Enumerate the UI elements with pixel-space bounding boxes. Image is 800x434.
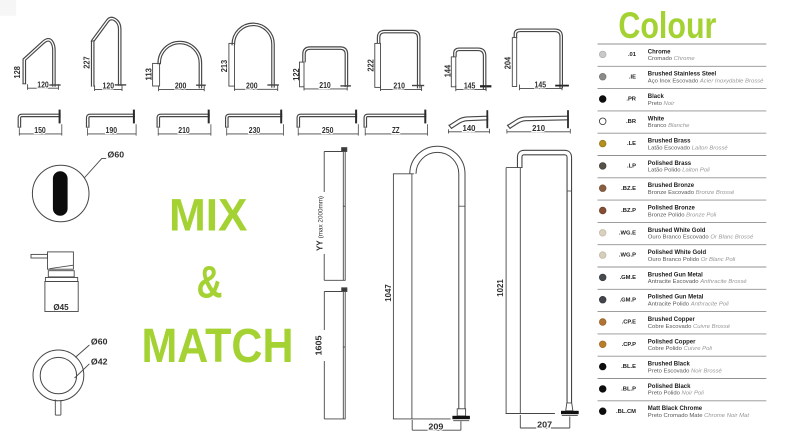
svg-text:.LP: .LP — [627, 164, 636, 170]
svg-text:113: 113 — [144, 68, 153, 81]
svg-text:Chrome: Chrome — [648, 49, 671, 55]
svg-text:207: 207 — [537, 419, 552, 429]
svg-text:.BL.CM: .BL.CM — [616, 409, 636, 415]
svg-text:.IE: .IE — [629, 74, 636, 80]
svg-text:Ø42: Ø42 — [91, 358, 108, 367]
svg-text:&: & — [197, 256, 223, 307]
svg-text:Colour: Colour — [618, 4, 716, 46]
svg-text:Ouro Branco Escovado Or Blanc: Ouro Branco Escovado Or Blanc Brossé — [648, 235, 754, 241]
svg-text:Cromado Chrome: Cromado Chrome — [648, 56, 696, 62]
svg-text:Polished Copper: Polished Copper — [648, 339, 696, 345]
svg-text:.BR: .BR — [626, 119, 637, 125]
svg-text:Brushed Copper: Brushed Copper — [648, 317, 696, 323]
svg-text:MIX: MIX — [169, 190, 248, 241]
svg-text:Bronze Escovado Bronze Brossé: Bronze Escovado Bronze Brossé — [648, 190, 735, 196]
svg-text:.CP.E: .CP.E — [622, 320, 637, 326]
svg-text:1605: 1605 — [314, 335, 324, 355]
svg-text:190: 190 — [106, 126, 118, 135]
svg-text:.BL.P: .BL.P — [621, 387, 636, 393]
svg-text:Antracite Escovado Anthracite: Antracite Escovado Anthracite Brossé — [648, 279, 748, 285]
svg-text:.BZ.P: .BZ.P — [621, 208, 636, 214]
svg-text:Brushed Bronze: Brushed Bronze — [648, 183, 695, 189]
svg-text:210: 210 — [319, 81, 331, 90]
svg-text:.BL.E: .BL.E — [621, 364, 636, 370]
svg-text:Ø45: Ø45 — [53, 303, 69, 312]
svg-text:.GM.E: .GM.E — [620, 275, 637, 281]
svg-text:.01: .01 — [628, 52, 637, 58]
svg-text:Brushed Brass: Brushed Brass — [648, 139, 691, 145]
svg-text:Cobre Polido Cuivre Poli: Cobre Polido Cuivre Poli — [648, 346, 713, 352]
svg-text:209: 209 — [428, 421, 443, 431]
svg-text:204: 204 — [503, 56, 512, 69]
svg-text:.CP.P: .CP.P — [622, 342, 637, 348]
svg-text:120: 120 — [103, 82, 115, 91]
svg-text:Preto Cromado Mate Chrome Noir: Preto Cromado Mate Chrome Noir Mat — [648, 413, 750, 419]
svg-text:Matt Black Chrome: Matt Black Chrome — [648, 406, 703, 412]
svg-text:YY (max 2000mm): YY (max 2000mm) — [316, 196, 325, 251]
svg-text:122: 122 — [292, 68, 301, 81]
svg-text:144: 144 — [444, 64, 453, 77]
svg-text:1047: 1047 — [384, 284, 393, 302]
svg-text:Brushed Gun Metal: Brushed Gun Metal — [648, 272, 703, 278]
svg-text:White: White — [648, 116, 665, 122]
svg-text:150: 150 — [34, 126, 46, 135]
svg-text:210: 210 — [178, 126, 190, 135]
svg-text:Polished Gun Metal: Polished Gun Metal — [648, 295, 704, 301]
svg-text:Latão Escovado Laiton Brossé: Latão Escovado Laiton Brossé — [648, 145, 729, 151]
svg-text:Preto Noir: Preto Noir — [648, 101, 676, 107]
svg-text:Aço Inox Escovado Acier Inoxyd: Aço Inox Escovado Acier Inoxydable Bross… — [648, 79, 764, 85]
svg-text:200: 200 — [175, 82, 187, 91]
svg-text:213: 213 — [220, 59, 229, 72]
svg-text:Bronze Polido Bronze Poli: Bronze Polido Bronze Poli — [648, 212, 717, 218]
svg-text:120: 120 — [37, 80, 49, 89]
svg-text:Cobre Escovado Cuivre Brossé: Cobre Escovado Cuivre Brossé — [648, 324, 731, 330]
svg-text:Preto Escovado Noir Brossé: Preto Escovado Noir Brossé — [648, 368, 723, 374]
svg-text:128: 128 — [13, 66, 22, 79]
svg-text:222: 222 — [366, 59, 375, 72]
svg-text:Polished Brass: Polished Brass — [648, 161, 692, 167]
svg-text:.LE: .LE — [627, 141, 636, 147]
svg-text:Brushed Stainless Steel: Brushed Stainless Steel — [648, 72, 717, 78]
svg-text:250: 250 — [322, 126, 334, 135]
svg-text:MATCH: MATCH — [142, 320, 294, 373]
svg-text:140: 140 — [463, 124, 477, 133]
svg-text:.WG.E: .WG.E — [619, 230, 636, 236]
svg-text:ZZ: ZZ — [392, 126, 400, 135]
svg-text:210: 210 — [532, 124, 546, 133]
svg-text:Antracite Polido Anthracite Po: Antracite Polido Anthracite Poli — [648, 302, 730, 308]
svg-text:Brushed White Gold: Brushed White Gold — [648, 228, 706, 234]
svg-text:230: 230 — [249, 126, 261, 135]
svg-text:Brushed Black: Brushed Black — [648, 362, 691, 368]
svg-text:200: 200 — [246, 81, 258, 90]
svg-text:210: 210 — [393, 82, 405, 91]
svg-text:227: 227 — [82, 56, 91, 69]
svg-text:Polished Black: Polished Black — [648, 384, 691, 390]
svg-text:145: 145 — [464, 82, 476, 91]
svg-text:Latão Polido Laiton Poli: Latão Polido Laiton Poli — [648, 168, 711, 174]
svg-text:.WG.P: .WG.P — [619, 253, 636, 259]
svg-text:Black: Black — [648, 94, 665, 100]
svg-text:Branco Blanche: Branco Blanche — [648, 123, 690, 129]
svg-text:Polished White Gold: Polished White Gold — [648, 250, 707, 256]
svg-text:Ø60: Ø60 — [108, 150, 125, 159]
svg-text:.PR: .PR — [626, 97, 636, 103]
svg-text:Ø60: Ø60 — [91, 338, 108, 347]
svg-text:Preto Polido Noir Poli: Preto Polido Noir Poli — [648, 391, 705, 397]
svg-text:.BZ.E: .BZ.E — [621, 186, 636, 192]
svg-text:1021: 1021 — [496, 279, 505, 297]
svg-text:Polished Bronze: Polished Bronze — [648, 206, 696, 212]
svg-text:Ouro Branco Polido Or Blanc Po: Ouro Branco Polido Or Blanc Poli — [648, 257, 736, 263]
svg-text:.GM.P: .GM.P — [620, 297, 637, 303]
svg-text:145: 145 — [535, 81, 547, 90]
